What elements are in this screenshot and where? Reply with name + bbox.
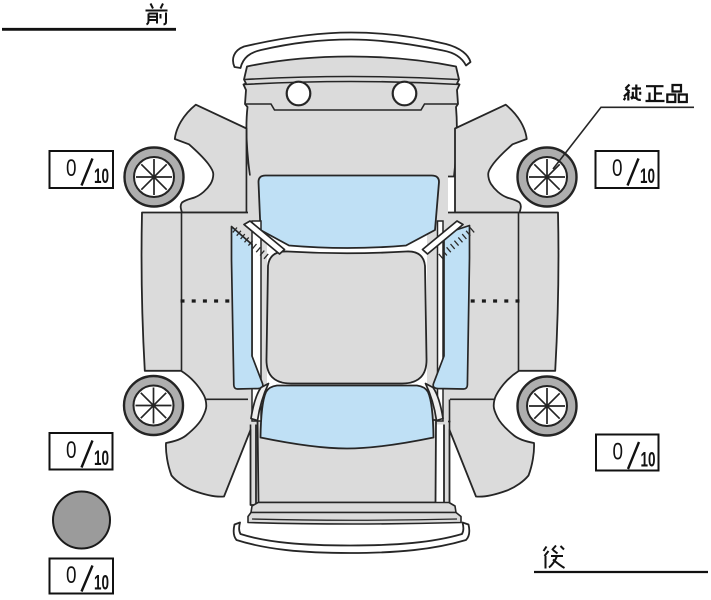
svg-text:10: 10	[94, 572, 109, 595]
svg-text:0: 0	[613, 439, 624, 466]
svg-text:10: 10	[641, 449, 656, 472]
svg-text:0: 0	[66, 155, 77, 182]
svg-text:0: 0	[66, 437, 77, 464]
svg-text:10: 10	[94, 165, 109, 188]
svg-text:0: 0	[66, 562, 77, 589]
svg-text:0: 0	[612, 155, 623, 182]
svg-text:10: 10	[640, 165, 655, 188]
svg-text:10: 10	[94, 447, 109, 470]
